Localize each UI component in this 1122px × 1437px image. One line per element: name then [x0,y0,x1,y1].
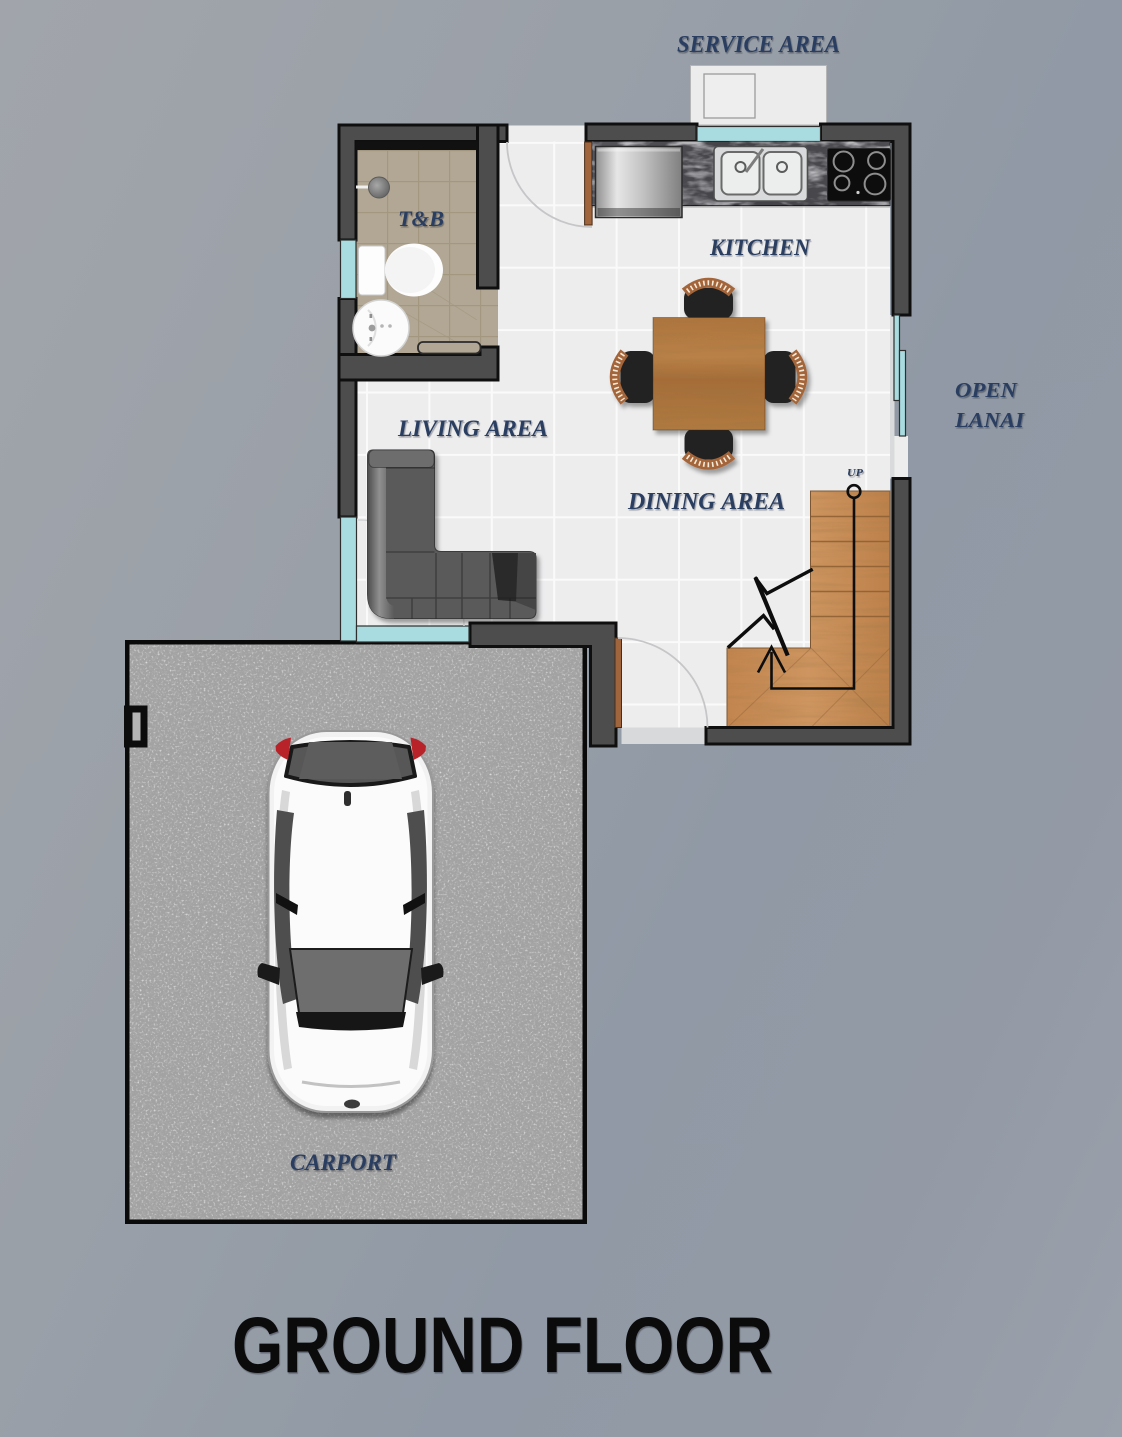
svg-text:KITCHEN: KITCHEN [709,235,811,260]
svg-text:UP: UP [847,467,863,479]
svg-text:OPEN: OPEN [955,378,1018,402]
svg-text:DINING AREA: DINING AREA [627,489,785,515]
svg-text:T&B: T&B [398,206,444,231]
svg-text:GROUND FLOOR: GROUND FLOOR [232,1300,773,1389]
svg-text:SERVICE AREA: SERVICE AREA [677,32,840,58]
svg-text:CARPORT: CARPORT [290,1150,397,1175]
svg-text:LANAI: LANAI [954,408,1025,432]
svg-text:LIVING AREA: LIVING AREA [397,416,548,441]
